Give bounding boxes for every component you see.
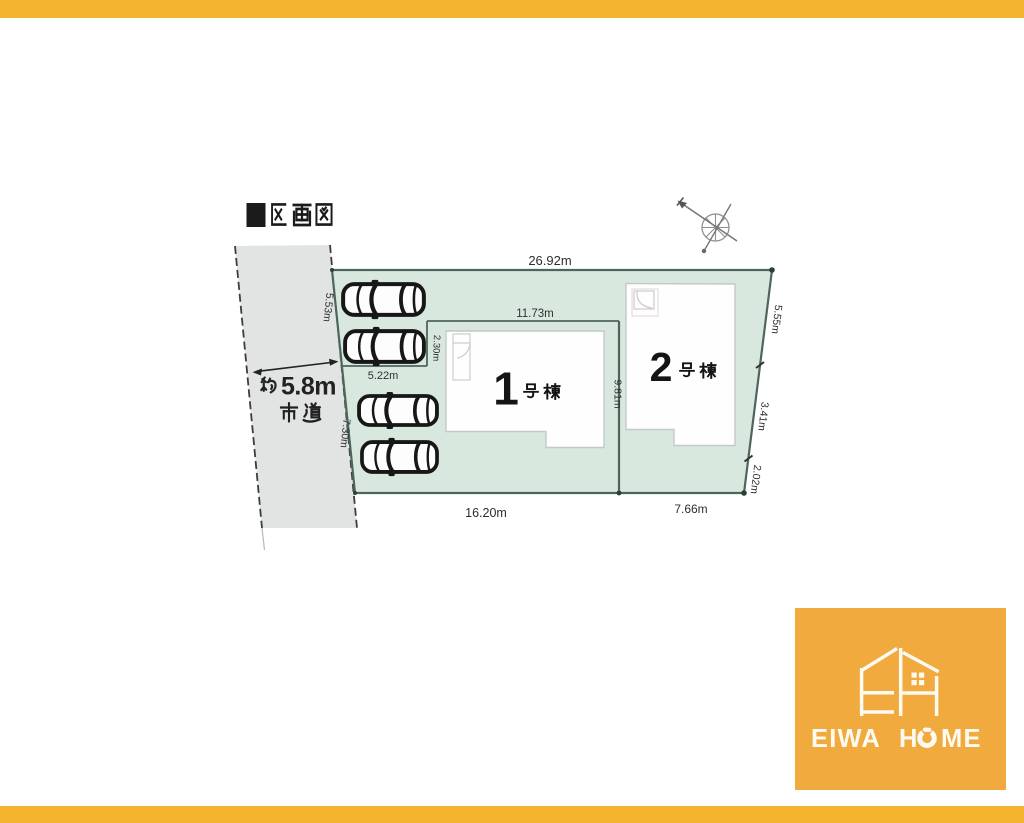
svg-text:11.73m: 11.73m [516,308,554,320]
svg-text:EIWA: EIWA [811,725,881,753]
svg-text:2: 2 [650,344,673,390]
svg-text:7.66m: 7.66m [674,502,707,516]
svg-text:16.20m: 16.20m [465,506,507,520]
svg-text:H: H [899,725,917,753]
svg-text:26.92m: 26.92m [528,253,571,268]
svg-text:5.8m: 5.8m [281,373,336,401]
svg-text:5.55m: 5.55m [769,304,784,335]
svg-text:1: 1 [493,363,519,415]
svg-text:2.30m: 2.30m [430,335,442,362]
svg-text:3.41m: 3.41m [755,401,770,432]
svg-text:2.02m: 2.02m [748,464,763,495]
svg-text:9.81m: 9.81m [612,379,624,408]
svg-text:5.22m: 5.22m [368,370,399,382]
svg-text:ME: ME [941,725,982,753]
